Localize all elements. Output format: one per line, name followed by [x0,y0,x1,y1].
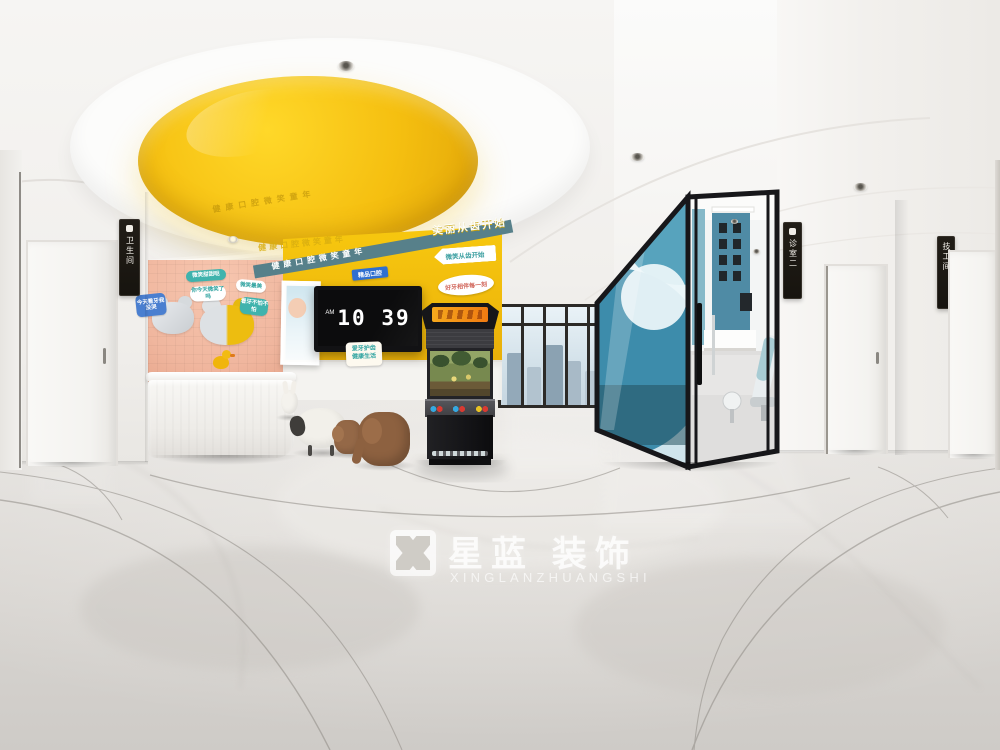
watermark-romanized: XINGLANZHUANGSHI [450,570,651,585]
glass-room-shadow [600,462,780,472]
tooth-pictogram-icon [789,228,796,235]
window-mullion [543,307,546,405]
reception-counter [148,380,294,458]
door-shadow [826,450,884,456]
slogan-bubble: 看牙不怕不怕 [239,296,269,316]
clock-meridiem: AM [325,310,334,316]
room-spotlight-icon [731,219,738,224]
clinic-room-sign-text: 诊室二 [789,239,797,269]
tv-clock-screen: AM 10 39 [318,290,418,346]
restroom-sign-text: 卫生间 [126,236,134,266]
restroom-door [26,240,118,466]
arcade-screen [430,351,490,396]
slogan-bubble: 今天看牙我没哭 [135,292,167,317]
right-edge-jamb [995,160,1000,470]
arcade-light-strip [432,451,488,456]
arcade-speaker-panel [426,329,494,349]
clinic-panorama: 健康口腔微笑童年 今天看牙我没哭 微笑甜甜哒 你今天微笑了吗 微笑最美 看牙不怕 [0,0,1000,750]
clinic-room-door [824,264,888,454]
watermark: 星蓝 装饰 XINGLANZHUANGSHI [390,526,630,596]
glass-door-handle [697,303,702,385]
clinic-room-sign: 诊室二 [783,222,802,299]
city-building [527,367,541,405]
city-building [567,361,581,405]
ceiling-spotlight-icon [338,61,354,71]
tv-under-sign: 爱牙护齿 健康生活 [346,341,383,366]
watermark-logo [390,530,436,576]
clock-time: 10 39 [337,306,410,330]
slogan-bubble: 你今天微笑了吗 [190,285,227,302]
door-shadow [28,462,114,468]
restroom-pictogram-icon [126,225,133,232]
elephant-toy-large [358,412,410,466]
slogan-bubble: 微笑最美 [236,279,267,294]
window-mullion [587,307,590,405]
rabbit-toy [281,390,298,414]
arcade-machine [421,303,499,465]
restroom-sign: 卫生间 [119,219,140,296]
window-mullion [565,307,568,405]
tv-under-sign-line2: 健康生活 [352,354,376,363]
duck-toy [213,356,229,369]
arcade-marquee [432,307,488,322]
city-building [545,345,563,405]
window-mullion [521,307,524,405]
tech-room-door [948,250,1000,458]
dome-spotlight-icon [228,236,238,243]
arcade-shadow [414,460,508,472]
counter-shadow [150,455,300,465]
corridor-corner [895,200,909,455]
ceiling-spotlight-icon [631,153,644,161]
room-spotlight-icon [753,249,760,254]
left-door-frame-line [19,172,21,468]
ceiling-spotlight-icon [854,183,867,191]
treatment-room-glass-wall [592,185,784,477]
door-shadow [948,454,998,460]
wall-corner [145,192,149,462]
